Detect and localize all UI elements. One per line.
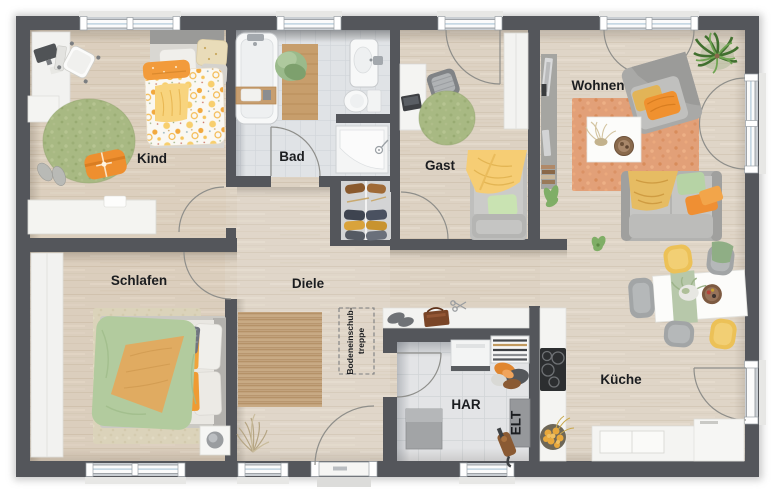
svg-text:Kind: Kind	[137, 151, 167, 166]
svg-text:Wohnen: Wohnen	[572, 78, 625, 93]
svg-text:ELT: ELT	[509, 410, 524, 435]
svg-text:Gast: Gast	[425, 158, 456, 173]
svg-text:HAR: HAR	[451, 397, 480, 412]
svg-text:Diele: Diele	[292, 276, 325, 291]
svg-text:Küche: Küche	[600, 372, 642, 387]
svg-text:treppe: treppe	[356, 328, 366, 354]
svg-text:Bad: Bad	[279, 149, 305, 164]
svg-text:Bodeneinschub-: Bodeneinschub-	[345, 307, 355, 374]
svg-text:Schlafen: Schlafen	[111, 273, 167, 288]
